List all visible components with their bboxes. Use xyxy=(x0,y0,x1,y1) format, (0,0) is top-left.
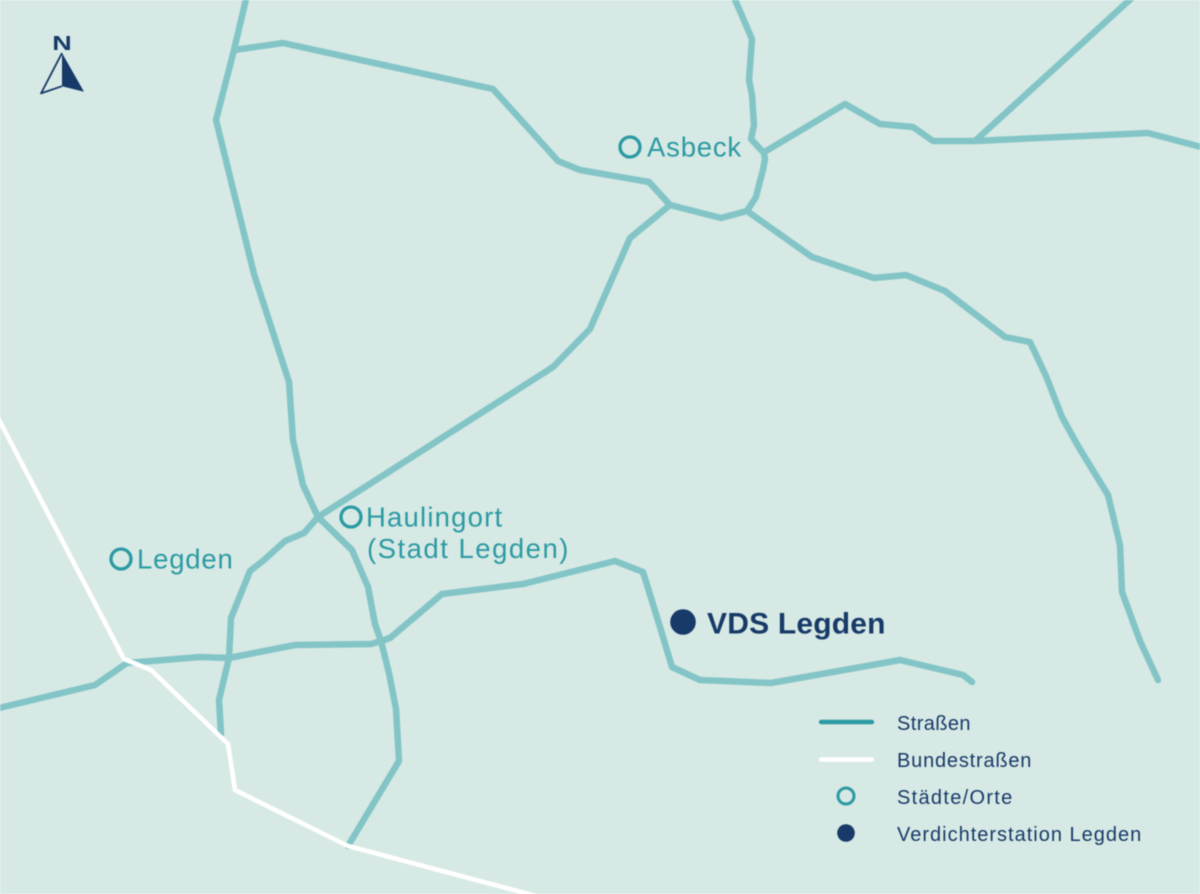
svg-text:VDS Legden: VDS Legden xyxy=(707,608,886,641)
svg-text:Bundestraßen: Bundestraßen xyxy=(897,750,1032,772)
svg-text:Haulingort: Haulingort xyxy=(366,502,503,533)
svg-text:N: N xyxy=(52,32,71,55)
svg-text:(Stadt Legden): (Stadt Legden) xyxy=(367,533,570,564)
svg-text:Asbeck: Asbeck xyxy=(647,132,742,163)
svg-text:Städte/Orte: Städte/Orte xyxy=(897,787,1014,809)
svg-text:Legden: Legden xyxy=(137,544,234,575)
svg-text:Straßen: Straßen xyxy=(897,713,971,735)
svg-text:Verdichterstation Legden: Verdichterstation Legden xyxy=(897,824,1142,846)
